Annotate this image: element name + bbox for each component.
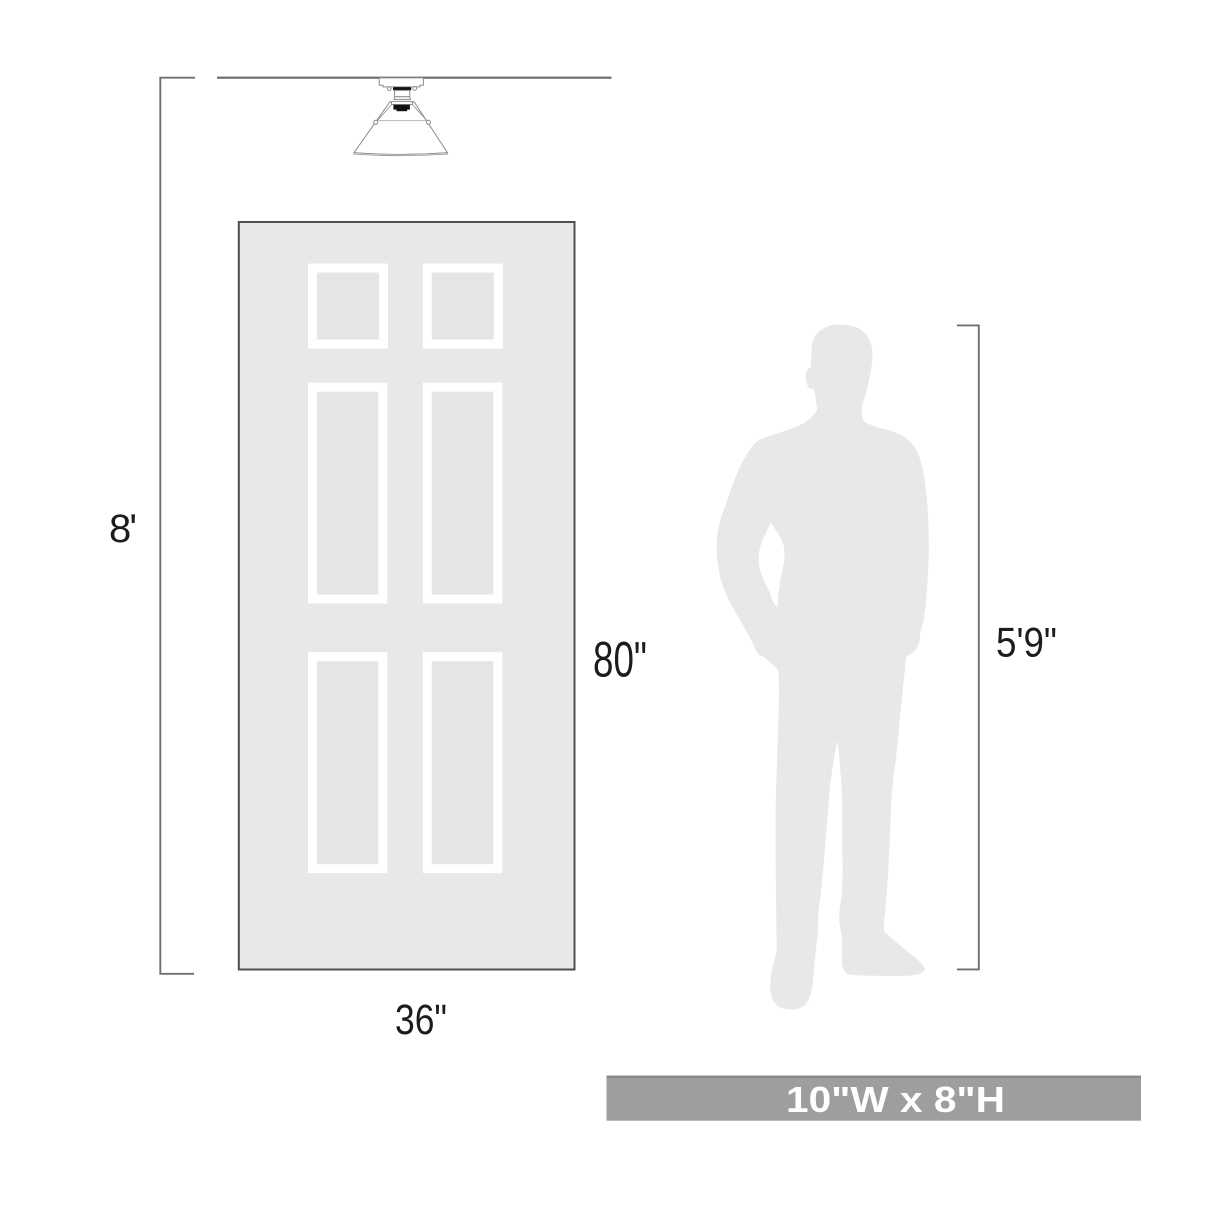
- svg-text:5'9": 5'9": [996, 619, 1057, 666]
- svg-text:80": 80": [593, 632, 647, 688]
- svg-text:8': 8': [109, 507, 137, 551]
- svg-text:10"W x 8"H: 10"W x 8"H: [786, 1079, 1005, 1120]
- svg-text:36": 36": [395, 996, 447, 1044]
